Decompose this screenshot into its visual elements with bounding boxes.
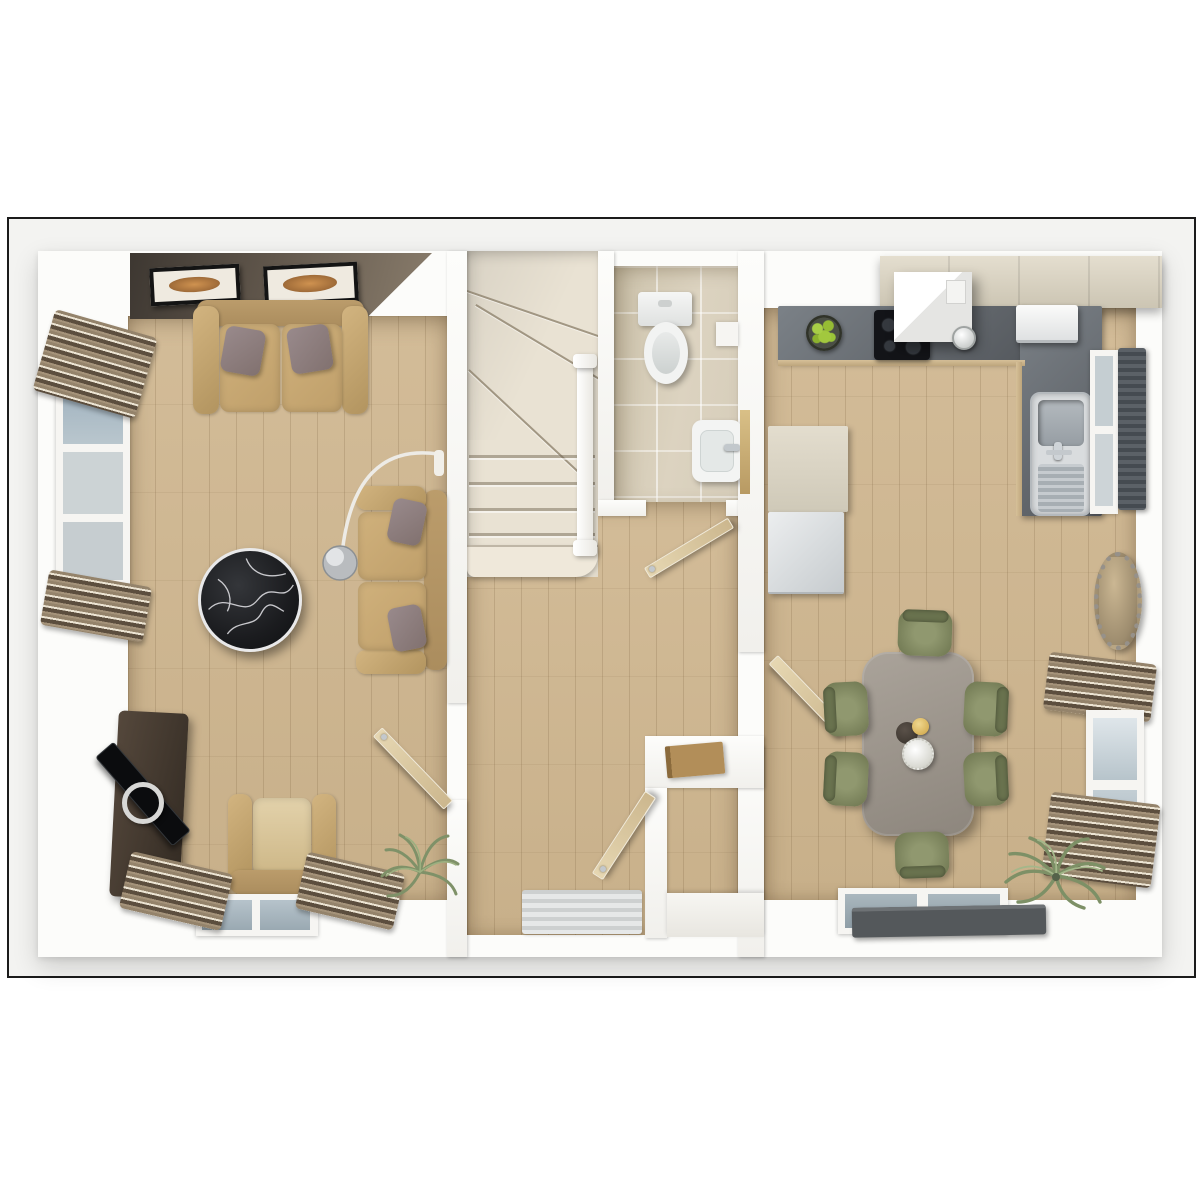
marble-veins xyxy=(201,551,299,649)
dining-chair xyxy=(823,681,870,737)
sofa-arm xyxy=(342,306,368,414)
hood-vent xyxy=(946,280,966,304)
artwork-image xyxy=(283,274,337,293)
wc-wall-shelf xyxy=(716,322,738,346)
wall-stairs-wc xyxy=(598,251,614,502)
window-pane xyxy=(1093,718,1137,780)
sofa-pillow xyxy=(219,325,266,377)
understair-step xyxy=(667,893,764,937)
basin-bowl xyxy=(700,430,734,472)
wall-living-hall-upper xyxy=(447,251,467,703)
door-handle xyxy=(649,566,655,572)
sink-tap-bar xyxy=(1046,450,1072,455)
wall-wc-bottom-left xyxy=(598,500,646,516)
oval-mirror xyxy=(1094,552,1142,650)
runner-rug xyxy=(852,904,1046,937)
doormat xyxy=(522,890,642,934)
chair-backrest xyxy=(899,865,945,879)
sink-drainer xyxy=(1038,464,1084,512)
artwork-image xyxy=(168,275,220,293)
console-book xyxy=(665,742,726,779)
countertop-appliance xyxy=(1016,305,1078,343)
kitchen-sink xyxy=(1030,392,1092,516)
stair-newel-post xyxy=(573,540,597,556)
dining-chair xyxy=(963,751,1010,807)
door-handle xyxy=(381,734,387,740)
decor-ring xyxy=(122,782,164,824)
chair-backrest xyxy=(823,687,837,734)
toilet-seat xyxy=(652,332,680,374)
window-pane xyxy=(63,522,123,580)
sofa-arm xyxy=(356,650,426,674)
chair-backrest xyxy=(902,609,948,623)
window-pane xyxy=(1095,356,1113,426)
arc-floor-lamp xyxy=(288,442,448,582)
dining-chair xyxy=(897,609,953,657)
centerpiece-plate xyxy=(912,718,929,735)
toilet-cistern xyxy=(638,292,692,326)
tall-larder-unit xyxy=(768,426,848,512)
kettle xyxy=(952,326,976,350)
fridge-freezer xyxy=(768,512,844,594)
dining-chair xyxy=(823,751,870,807)
sofa-backrest xyxy=(197,300,364,326)
fruit-bowl xyxy=(806,315,842,351)
toilet-flush-button xyxy=(658,300,672,307)
sofa-arm xyxy=(193,306,219,414)
plan-outer-frame xyxy=(7,217,1196,978)
radiator xyxy=(1118,348,1146,510)
palm-plant xyxy=(1000,832,1112,914)
stair-newel-post xyxy=(573,354,597,368)
fern-plant xyxy=(378,830,462,906)
window-pane xyxy=(1095,434,1113,506)
kitchen-side-window xyxy=(1090,350,1118,514)
chair-backrest xyxy=(823,755,837,802)
stair-handrail xyxy=(577,362,593,548)
armchair-seat xyxy=(253,798,311,874)
door-handle xyxy=(600,866,606,872)
understair-wall xyxy=(645,788,667,938)
cabinet-front-edge xyxy=(778,360,1025,366)
plan-world xyxy=(0,0,1200,1200)
chair-backrest xyxy=(995,687,1009,734)
chair-backrest xyxy=(995,755,1009,802)
dining-chair xyxy=(894,831,950,879)
window-pane xyxy=(63,452,123,514)
vanity-ledge xyxy=(740,410,750,494)
sink-basin xyxy=(1038,400,1084,446)
coffee-table xyxy=(198,548,302,652)
basin-tap xyxy=(724,444,740,451)
sofa-large xyxy=(193,300,368,418)
armchair-arm xyxy=(228,794,252,882)
centerpiece-flowers xyxy=(902,738,934,770)
sofa-pillow xyxy=(286,323,335,375)
dining-chair xyxy=(963,681,1010,737)
cabinet-front-edge xyxy=(1016,362,1022,516)
